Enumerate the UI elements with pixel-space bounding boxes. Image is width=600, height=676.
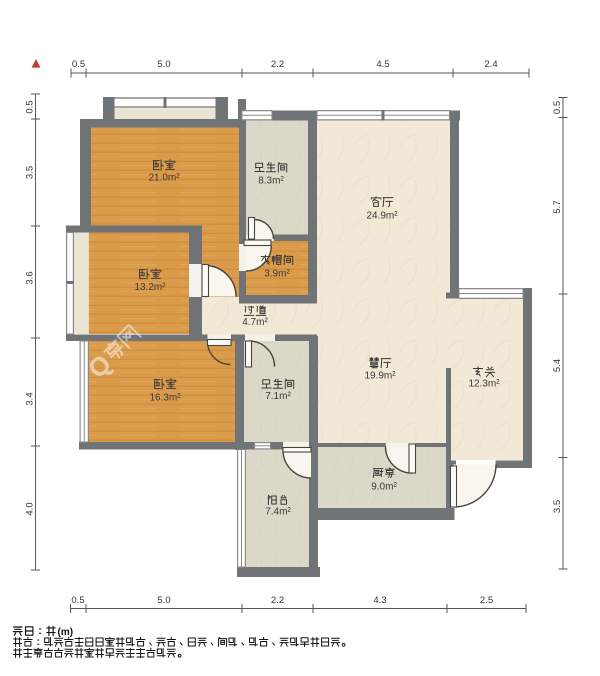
svg-text:(m): (m) bbox=[58, 627, 74, 638]
svg-text:13.2m²: 13.2m² bbox=[134, 282, 166, 293]
svg-text:2.5: 2.5 bbox=[480, 595, 493, 606]
svg-text:0.5: 0.5 bbox=[552, 101, 563, 114]
svg-text:7.1m²: 7.1m² bbox=[265, 391, 291, 402]
svg-text:12.3m²: 12.3m² bbox=[468, 379, 500, 390]
svg-text:7.4m²: 7.4m² bbox=[265, 507, 291, 518]
svg-text:8.3m²: 8.3m² bbox=[258, 176, 284, 187]
svg-text:2.4: 2.4 bbox=[484, 59, 497, 70]
svg-text:24.9m²: 24.9m² bbox=[366, 211, 398, 222]
svg-text:2.2: 2.2 bbox=[271, 595, 284, 606]
svg-text:5.0: 5.0 bbox=[157, 595, 170, 606]
svg-text:5.0: 5.0 bbox=[157, 59, 170, 70]
svg-text:3.5: 3.5 bbox=[25, 166, 36, 179]
svg-text:5.7: 5.7 bbox=[552, 200, 563, 213]
svg-text:3.6: 3.6 bbox=[25, 271, 36, 284]
svg-text:4.3: 4.3 bbox=[373, 595, 386, 606]
svg-text:16.3m²: 16.3m² bbox=[149, 393, 181, 404]
svg-text:5.4: 5.4 bbox=[552, 359, 563, 372]
svg-text:2.2: 2.2 bbox=[271, 59, 284, 70]
svg-text:4.0: 4.0 bbox=[25, 502, 36, 515]
svg-text:3.5: 3.5 bbox=[552, 500, 563, 513]
svg-text:0.5: 0.5 bbox=[71, 595, 84, 606]
svg-text:0.5: 0.5 bbox=[72, 59, 85, 70]
svg-text:21.0m²: 21.0m² bbox=[148, 173, 180, 184]
svg-text:3.4: 3.4 bbox=[25, 392, 36, 405]
svg-text:4.7m²: 4.7m² bbox=[242, 317, 268, 328]
svg-text:4.5: 4.5 bbox=[376, 59, 389, 70]
svg-text:19.9m²: 19.9m² bbox=[364, 371, 396, 382]
svg-text:0.5: 0.5 bbox=[25, 100, 36, 113]
svg-text:3.9m²: 3.9m² bbox=[264, 269, 290, 280]
svg-text:9.0m²: 9.0m² bbox=[371, 482, 397, 493]
